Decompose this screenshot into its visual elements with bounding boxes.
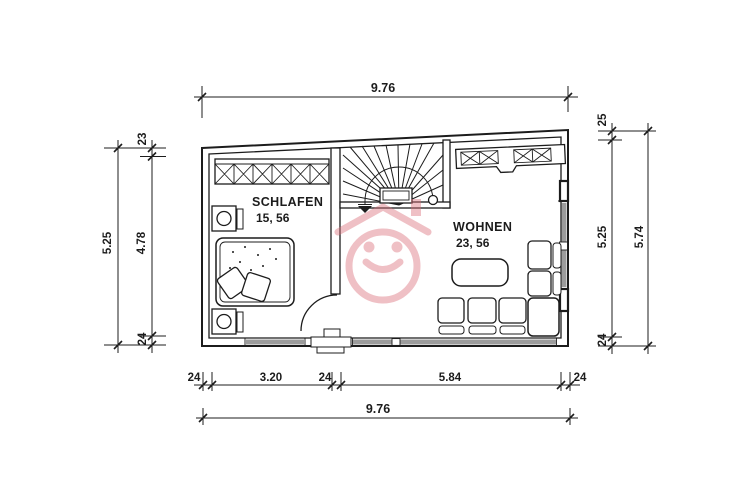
dimension-right: 25 5.25 24 5.74 xyxy=(597,113,656,354)
nightstand-top xyxy=(212,206,243,231)
dim-bottom-pier: 24 xyxy=(319,372,332,384)
floorplan-page: 9.76 24 3.20 24 5.84 24 9.76 5.25 23 4.7… xyxy=(0,0,750,487)
partition-wall-bedroom xyxy=(331,148,340,294)
dimension-left: 5.25 23 4.78 24 xyxy=(102,133,166,353)
watermark-chimney xyxy=(411,199,421,216)
double-bed xyxy=(216,238,294,306)
dim-bottom-right-wall: 24 xyxy=(574,372,587,384)
sofa-seat xyxy=(528,241,551,269)
sofa-backrest xyxy=(469,326,496,334)
sofa-backrest xyxy=(500,326,525,334)
sofa-seat xyxy=(528,271,551,296)
dim-bottom-left-wall: 24 xyxy=(188,372,201,384)
watermark-eye xyxy=(392,242,403,253)
dim-top-total: 9.76 xyxy=(371,81,395,95)
dimension-top: 9.76 xyxy=(194,81,578,118)
room-name-bedroom: SCHLAFEN xyxy=(252,195,323,209)
dimension-bottom-total: 9.76 xyxy=(196,402,578,425)
threshold-inner-step xyxy=(324,329,340,337)
stair-landing xyxy=(380,188,412,203)
floor-plan-canvas: 9.76 24 3.20 24 5.84 24 9.76 5.25 23 4.7… xyxy=(0,0,750,487)
nightstand-bottom xyxy=(212,309,243,334)
sofa-backrest xyxy=(553,243,561,268)
dim-left-total: 5.25 xyxy=(102,231,114,254)
window-divider xyxy=(392,339,400,346)
dimension-bottom-chain: 24 3.20 24 5.84 24 xyxy=(188,372,587,391)
dim-right-bottom: 24 xyxy=(597,333,609,346)
sofa-backrest xyxy=(553,272,561,295)
room-area-bedroom: 15, 56 xyxy=(256,211,290,225)
sofa-backrest xyxy=(439,326,464,334)
sofa-corner-seat xyxy=(528,298,559,336)
stair-newel-post xyxy=(429,196,438,205)
dim-right-total: 5.74 xyxy=(634,225,646,248)
dim-bottom-bedroom: 3.20 xyxy=(260,372,282,384)
sofa-seat xyxy=(468,298,496,323)
wall-pier-above-window xyxy=(560,181,568,201)
window-glazing xyxy=(246,340,304,345)
coffee-table xyxy=(452,259,508,286)
dim-left-room: 4.78 xyxy=(136,231,148,254)
window-glazing xyxy=(353,340,556,345)
room-area-living: 23, 56 xyxy=(456,236,490,250)
dim-left-bottom: 24 xyxy=(137,332,149,345)
dim-bottom-living: 5.84 xyxy=(439,372,462,384)
threshold-outer-step xyxy=(317,347,344,353)
sofa-seat xyxy=(438,298,464,323)
room-name-living: WOHNEN xyxy=(453,220,512,234)
dim-right-top: 25 xyxy=(597,113,609,126)
dim-left-top: 23 xyxy=(137,133,149,146)
stair-enclosure-wall xyxy=(443,140,450,208)
wardrobe xyxy=(215,159,329,184)
sofa-seat xyxy=(499,298,526,323)
dim-bottom-total: 9.76 xyxy=(366,402,390,416)
watermark-eye xyxy=(364,242,375,253)
dim-right-room: 5.25 xyxy=(597,225,609,248)
threshold-opening xyxy=(311,337,351,347)
